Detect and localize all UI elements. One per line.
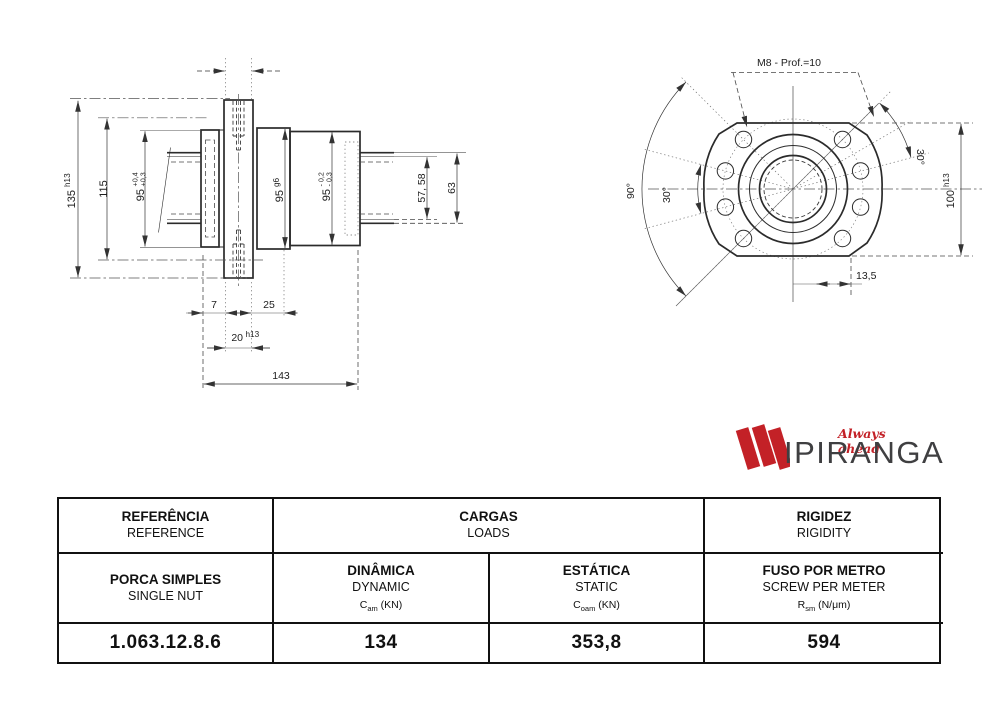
thread-note: M8 - Prof.=10 — [757, 57, 821, 69]
svg-text:115: 115 — [98, 180, 110, 198]
dim-label-95-flange: 95 +0,4 +0,3 — [131, 172, 148, 201]
svg-text:63: 63 — [446, 182, 458, 194]
svg-text:h13: h13 — [63, 173, 72, 187]
subheader-screw-per-meter: FUSO POR METRO SCREW PER METER Rsm (N/μm… — [705, 554, 943, 624]
svg-text:30°: 30° — [661, 187, 673, 203]
dim-label-30deg-right: 30° — [914, 149, 926, 165]
value-dynamic: 134 — [274, 624, 490, 662]
dim-label-7: 7 — [211, 299, 217, 311]
subheader-dynamic: DINÂMICA DYNAMIC Cam (KN) — [274, 554, 490, 624]
svg-text:95: 95 — [274, 190, 286, 202]
svg-text:- 0,3: - 0,3 — [325, 172, 334, 186]
svg-text:+0,3: +0,3 — [139, 172, 148, 186]
dim-label-90deg: 90° — [625, 183, 637, 199]
svg-text:95: 95 — [135, 189, 147, 201]
front-view: M8 - Prof.=10 90° 30° 30° 100 h13 13,5 — [625, 57, 982, 306]
subheader-static: ESTÁTICA STATIC Coam (KN) — [490, 554, 705, 624]
svg-text:g6: g6 — [272, 177, 281, 187]
svg-text:30°: 30° — [914, 149, 926, 165]
subheader-product: PORCA SIMPLES SINGLE NUT — [59, 554, 274, 624]
nut-body-rear — [290, 132, 360, 246]
dim-label-20: 20 h13 — [231, 330, 259, 344]
dim-label-135: 135 h13 — [63, 173, 78, 208]
drawing-sheet: 135 h13 115 95 +0,4 +0,3 95 g6 95 - 0,2 … — [0, 0, 1000, 707]
logo-brand-text: IPIRANGA — [784, 435, 944, 471]
spec-table: REFERÊNCIA REFERENCE CARGAS LOADS RIGIDE… — [57, 497, 941, 664]
svg-text:20: 20 — [231, 332, 243, 344]
nut-collar — [201, 130, 219, 247]
dim-label-25: 25 — [263, 299, 275, 311]
header-rigidity: RIGIDEZ RIGIDITY — [705, 499, 943, 554]
value-rigidity: 594 — [705, 624, 943, 662]
wiper-seal — [345, 142, 358, 235]
svg-text:90°: 90° — [625, 183, 637, 199]
header-reference: REFERÊNCIA REFERENCE — [59, 499, 274, 554]
dim-label-30deg-left: 30° — [661, 187, 673, 203]
dim-label-143: 143 — [272, 370, 290, 382]
logo-mark-icon — [698, 420, 790, 476]
value-reference: 1.063.12.8.6 — [59, 624, 274, 662]
dim-label-13-5: 13,5 — [856, 270, 877, 282]
svg-text:95: 95 — [321, 189, 333, 201]
svg-text:100: 100 — [945, 190, 957, 208]
svg-text:h13: h13 — [246, 330, 260, 339]
dim-label-57-58: 57, 58 — [416, 173, 428, 202]
svg-text:57, 58: 57, 58 — [416, 173, 428, 202]
header-loads: CARGAS LOADS — [274, 499, 705, 554]
dim-label-95-body: 95 g6 — [272, 177, 286, 202]
value-static: 353,8 — [490, 624, 705, 662]
svg-text:135: 135 — [66, 190, 78, 208]
dim-label-100: 100 h13 — [942, 173, 957, 208]
dim-label-95-end: 95 - 0,2 - 0,3 — [317, 172, 334, 201]
dim-label-63: 63 — [446, 182, 458, 194]
side-view: 135 h13 115 95 +0,4 +0,3 95 g6 95 - 0,2 … — [63, 58, 466, 390]
svg-text:h13: h13 — [942, 173, 951, 187]
dim-label-115: 115 — [98, 180, 110, 198]
logo: Always ahead IPIRANGA — [698, 420, 923, 478]
